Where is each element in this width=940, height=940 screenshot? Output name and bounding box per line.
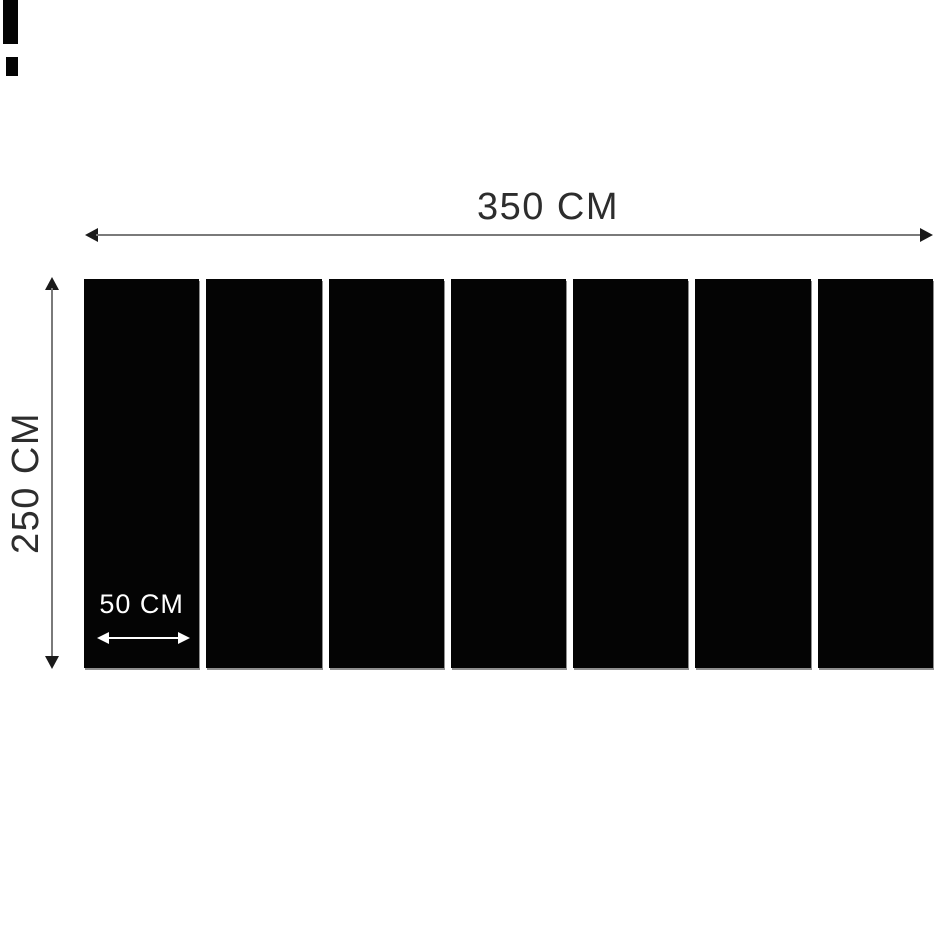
total-height-dimension-arrow: [44, 277, 60, 669]
arrow-right-icon: [920, 228, 933, 242]
panel: [573, 279, 688, 668]
panel: 50 CM: [84, 279, 199, 668]
diagram-canvas: 350 CM 250 CM 50 CM: [0, 0, 940, 940]
panel: [451, 279, 566, 668]
dimension-line: [107, 637, 180, 639]
top-left-artifact-mark-1: [3, 0, 18, 44]
panel-width-dimension-arrow: [97, 630, 190, 646]
panel-width-label: 50 CM: [84, 589, 199, 620]
panel: [206, 279, 321, 668]
panel: [695, 279, 810, 668]
arrow-right-icon: [178, 632, 190, 644]
panel: [818, 279, 933, 668]
total-height-label: 250 CM: [4, 363, 48, 603]
dimension-line: [96, 234, 922, 236]
arrow-down-icon: [45, 656, 59, 669]
dimension-line: [51, 288, 53, 658]
total-width-dimension-arrow: [85, 227, 933, 243]
panel-strip: 50 CM: [84, 279, 933, 668]
panel: [329, 279, 444, 668]
total-width-label: 350 CM: [428, 186, 668, 228]
top-left-artifact-mark-2: [6, 57, 18, 76]
